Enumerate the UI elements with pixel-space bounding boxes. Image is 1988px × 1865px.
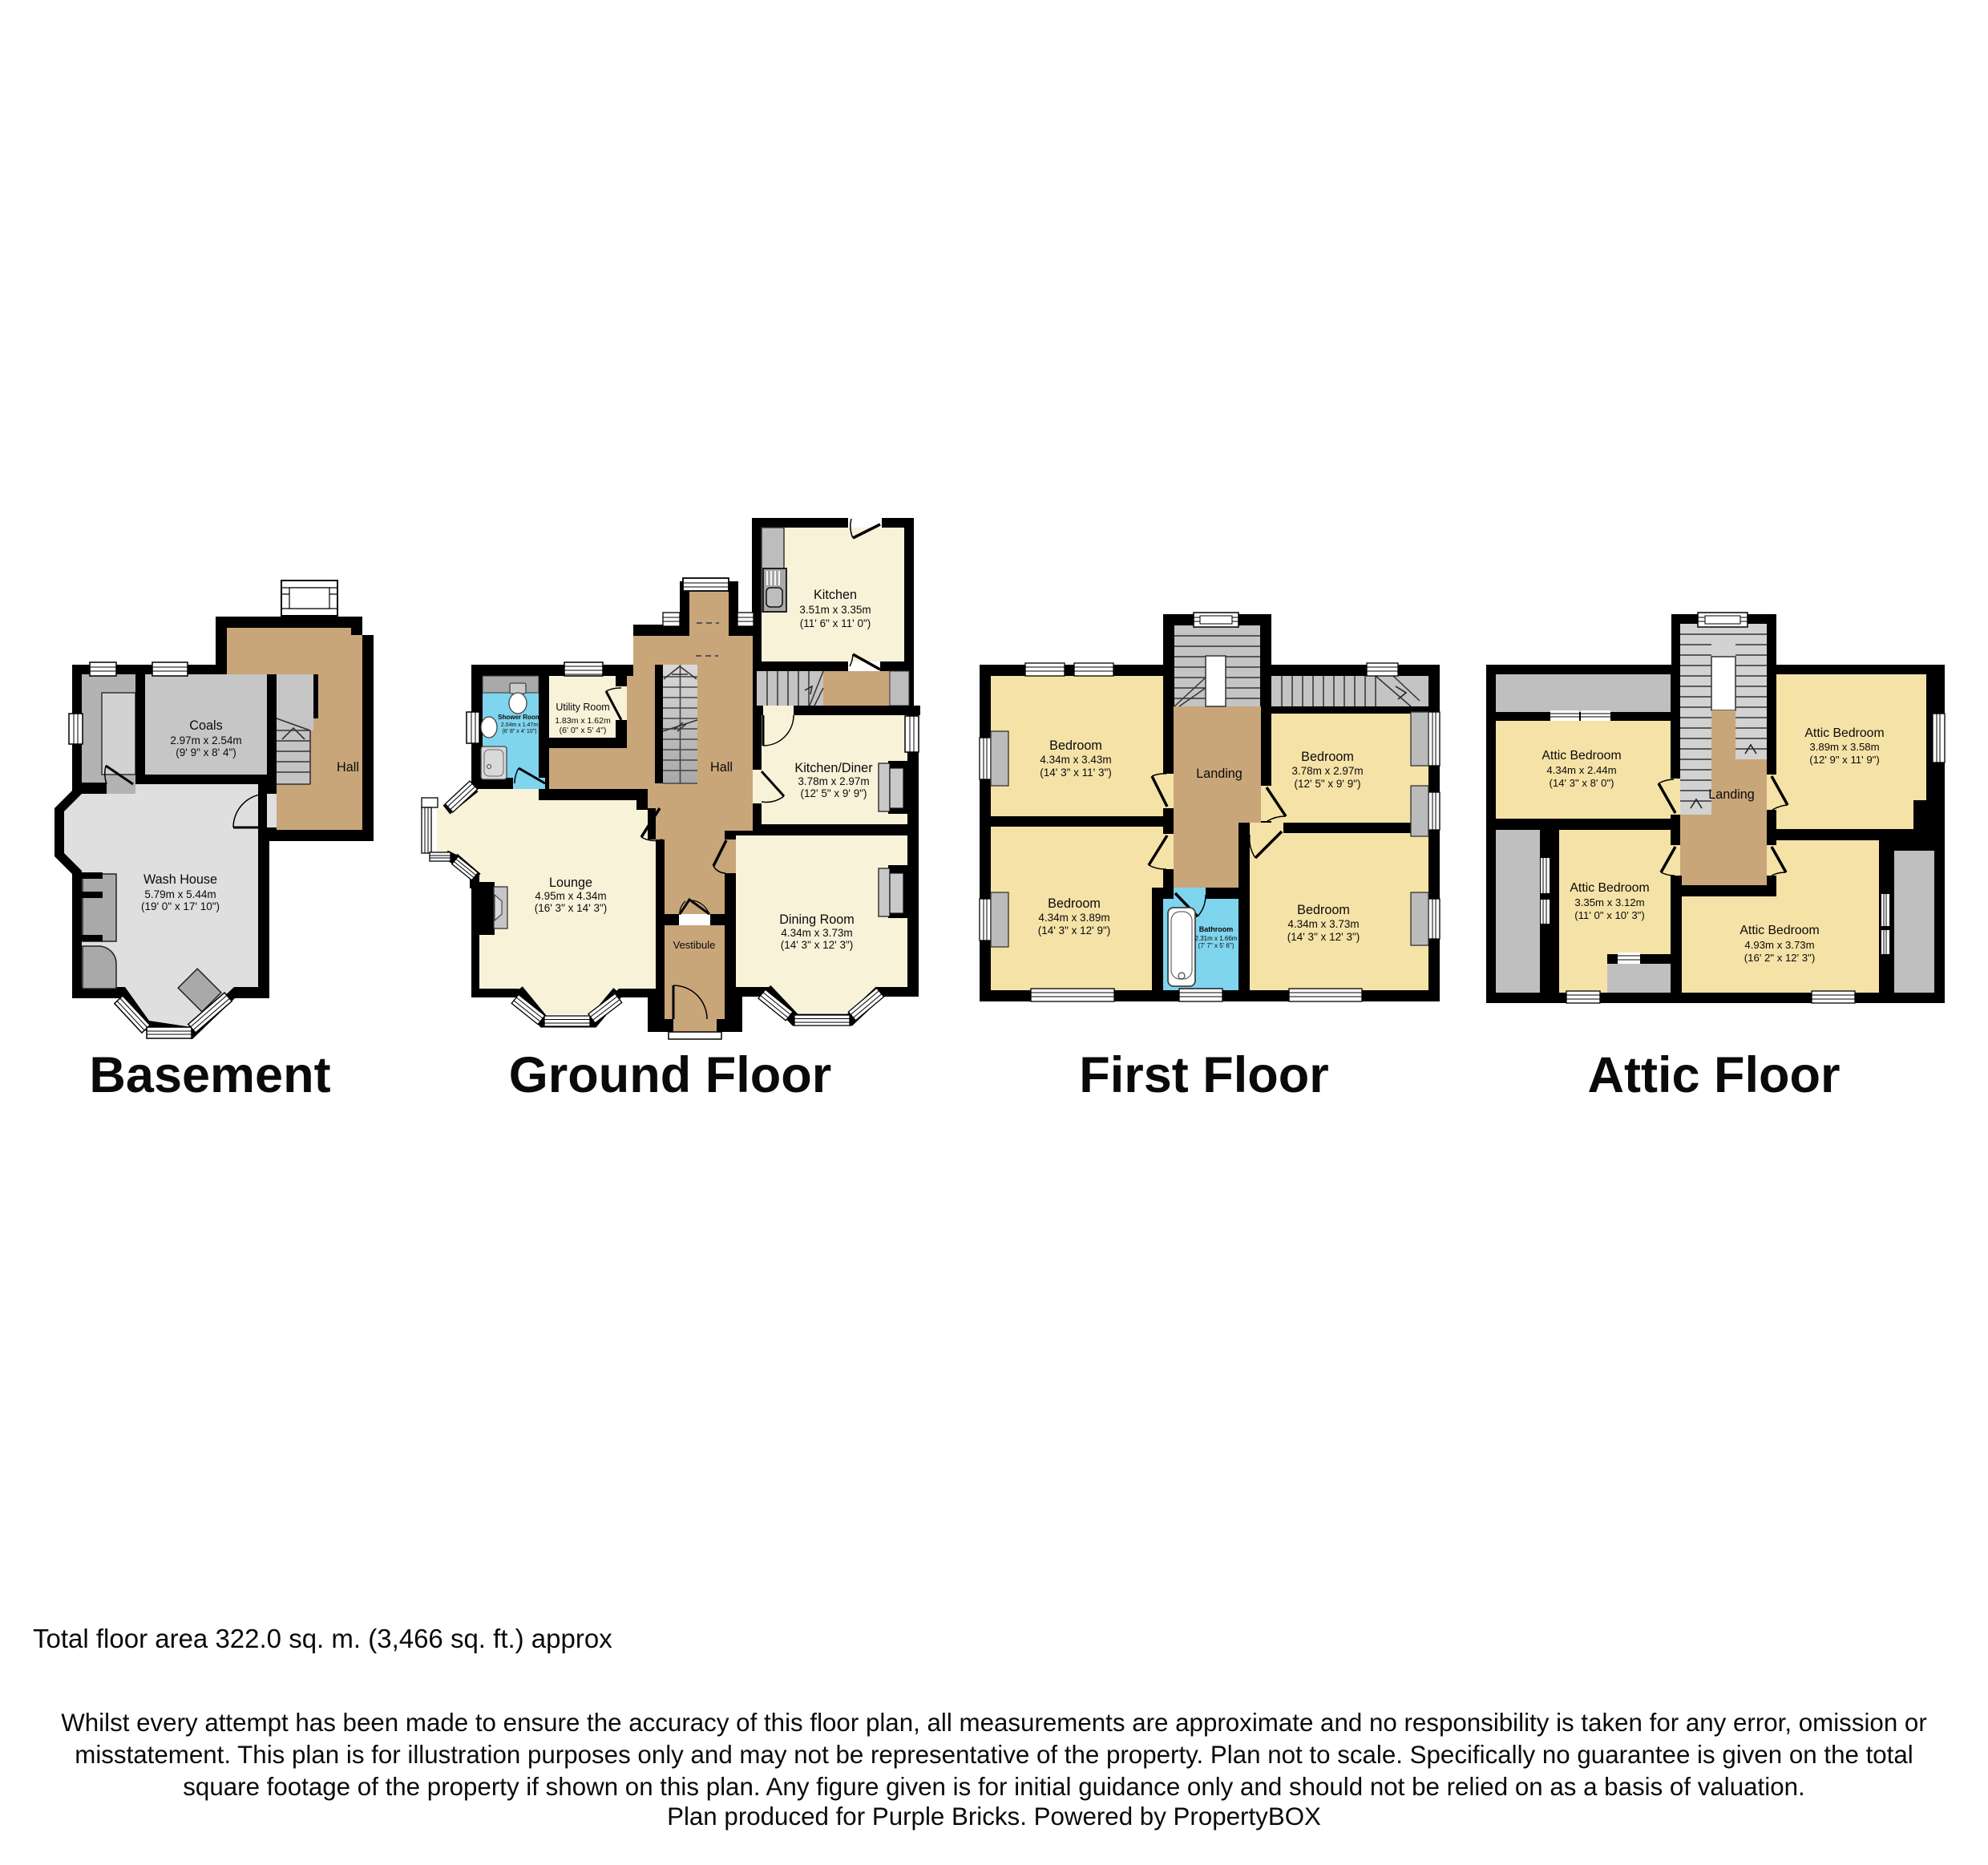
svg-text:Attic Bedroom: Attic Bedroom: [1804, 726, 1884, 740]
svg-text:3.78m x 2.97m: 3.78m x 2.97m: [798, 775, 869, 787]
svg-text:square footage of the property: square footage of the property if shown …: [183, 1773, 1804, 1801]
svg-text:5.79m x 5.44m: 5.79m x 5.44m: [144, 888, 216, 900]
svg-text:Hall: Hall: [337, 760, 359, 775]
svg-text:4.93m x 3.73m: 4.93m x 3.73m: [1744, 939, 1814, 951]
svg-text:(9' 9" x 8' 4"): (9' 9" x 8' 4"): [176, 746, 236, 759]
svg-text:(14' 3" x 8' 0"): (14' 3" x 8' 0"): [1549, 777, 1614, 789]
svg-text:Kitchen/Diner: Kitchen/Diner: [794, 761, 873, 775]
svg-text:Total floor area 322.0 sq. m.: Total floor area 322.0 sq. m. (3,466 sq.…: [33, 1624, 612, 1653]
svg-text:4.34m x 3.73m: 4.34m x 3.73m: [781, 927, 852, 939]
svg-text:Attic Floor: Attic Floor: [1588, 1047, 1841, 1103]
svg-text:(12' 5" x 9' 9"): (12' 5" x 9' 9"): [800, 787, 867, 799]
svg-text:(11' 0" x 10' 3"): (11' 0" x 10' 3"): [1574, 909, 1644, 921]
svg-text:Utility Room: Utility Room: [556, 702, 609, 713]
svg-text:(16' 3" x 14' 3"): (16' 3" x 14' 3"): [535, 902, 608, 914]
svg-text:2.31m x 1.66m: 2.31m x 1.66m: [1195, 935, 1238, 942]
svg-text:Kitchen: Kitchen: [814, 588, 857, 602]
svg-text:(6' 0" x 5' 4"): (6' 0" x 5' 4"): [560, 726, 607, 735]
svg-text:Bedroom: Bedroom: [1297, 903, 1350, 917]
svg-text:Attic Bedroom: Attic Bedroom: [1570, 881, 1649, 895]
svg-text:4.34m x 2.44m: 4.34m x 2.44m: [1546, 764, 1616, 776]
svg-text:(7' 7" x 5' 6"): (7' 7" x 5' 6"): [1198, 942, 1234, 949]
svg-text:(14' 3" x 12' 9"): (14' 3" x 12' 9"): [1038, 924, 1111, 937]
svg-text:Bedroom: Bedroom: [1048, 896, 1101, 911]
svg-text:Shower Room: Shower Room: [498, 714, 541, 721]
svg-text:Landing: Landing: [1196, 767, 1242, 781]
svg-text:4.34m x 3.89m: 4.34m x 3.89m: [1038, 912, 1109, 924]
svg-text:2.97m x 2.54m: 2.97m x 2.54m: [170, 734, 241, 746]
svg-text:3.35m x 3.12m: 3.35m x 3.12m: [1574, 896, 1644, 908]
svg-text:Basement: Basement: [89, 1047, 330, 1103]
svg-text:(14' 3" x 12' 3"): (14' 3" x 12' 3"): [1287, 931, 1360, 943]
svg-text:Lounge: Lounge: [549, 876, 592, 890]
svg-text:3.51m x 3.35m: 3.51m x 3.35m: [799, 604, 871, 616]
svg-text:1.83m x 1.62m: 1.83m x 1.62m: [555, 716, 611, 726]
svg-text:Hall: Hall: [710, 760, 733, 775]
svg-text:Wash House: Wash House: [143, 872, 217, 887]
svg-text:(6' 8" x 4' 10"): (6' 8" x 4' 10"): [502, 729, 536, 734]
svg-text:Attic Bedroom: Attic Bedroom: [1739, 924, 1819, 937]
svg-text:Dining Room: Dining Room: [779, 912, 855, 927]
svg-text:Coals: Coals: [189, 718, 222, 733]
svg-text:(14' 3" x 12' 3"): (14' 3" x 12' 3"): [781, 939, 854, 951]
svg-text:2.04m x 1.47m: 2.04m x 1.47m: [501, 722, 538, 728]
svg-text:(19' 0" x 17' 10"): (19' 0" x 17' 10"): [141, 900, 220, 912]
svg-text:misstatement. This plan is for: misstatement. This plan is for illustrat…: [75, 1741, 1913, 1769]
svg-text:4.34m x 3.43m: 4.34m x 3.43m: [1040, 754, 1111, 766]
svg-text:Bathroom: Bathroom: [1199, 925, 1234, 933]
svg-text:Plan produced for Purple Brick: Plan produced for Purple Bricks. Powered…: [667, 1802, 1321, 1831]
svg-text:Landing: Landing: [1708, 787, 1755, 802]
svg-text:(12' 9" x 11' 9"): (12' 9" x 11' 9"): [1809, 754, 1879, 766]
svg-text:4.95m x 4.34m: 4.95m x 4.34m: [535, 890, 606, 902]
svg-text:(12' 5" x 9' 9"): (12' 5" x 9' 9"): [1294, 778, 1360, 790]
svg-text:Vestibule: Vestibule: [673, 939, 716, 951]
svg-text:Attic Bedroom: Attic Bedroom: [1542, 749, 1621, 763]
svg-text:(14' 3" x 11' 3"): (14' 3" x 11' 3"): [1040, 767, 1112, 779]
svg-text:First Floor: First Floor: [1079, 1047, 1329, 1103]
svg-text:(11' 6" x 11' 0"): (11' 6" x 11' 0"): [800, 617, 871, 629]
svg-text:4.34m x 3.73m: 4.34m x 3.73m: [1287, 918, 1359, 930]
svg-text:3.78m x 2.97m: 3.78m x 2.97m: [1291, 765, 1363, 777]
svg-text:Bedroom: Bedroom: [1301, 750, 1354, 764]
svg-text:(16' 2" x 12' 3"): (16' 2" x 12' 3"): [1744, 952, 1815, 964]
svg-text:Ground Floor: Ground Floor: [509, 1047, 831, 1103]
svg-text:3.89m x 3.58m: 3.89m x 3.58m: [1809, 741, 1879, 753]
svg-text:Bedroom: Bedroom: [1049, 738, 1102, 753]
svg-text:Whilst every attempt has been: Whilst every attempt has been made to en…: [61, 1709, 1927, 1737]
